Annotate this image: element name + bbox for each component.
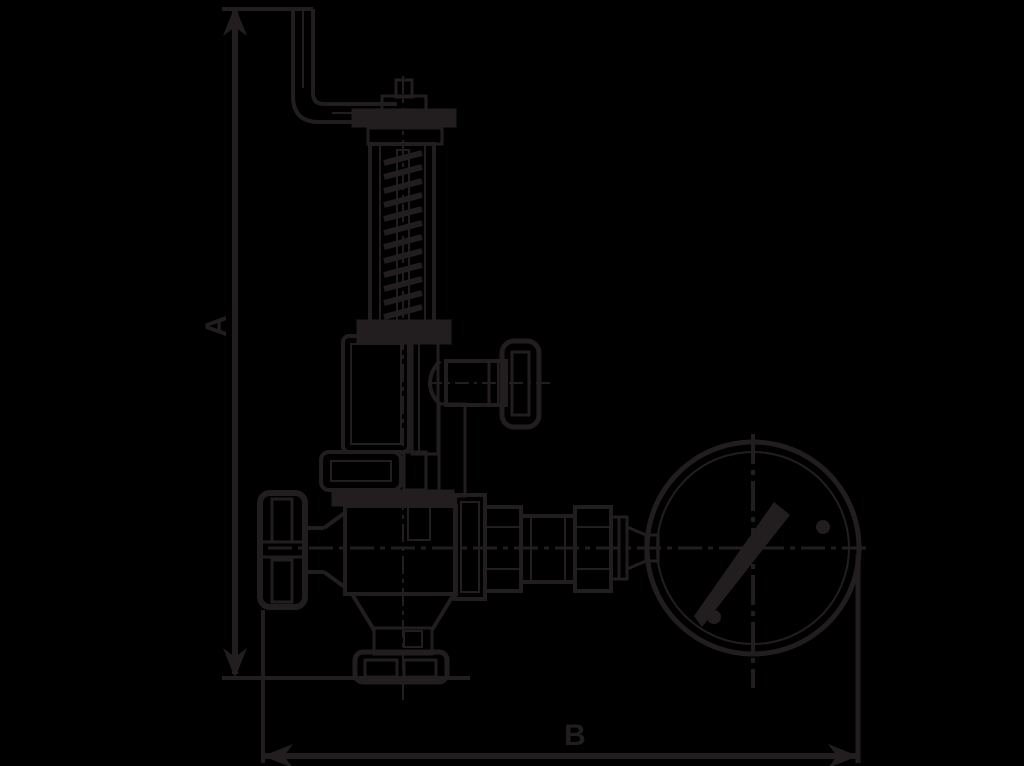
drawing-canvas: A B [0, 0, 1024, 766]
upper-valve-body [321, 336, 438, 490]
gauge-screw-right [816, 520, 830, 534]
stem-cone-top [324, 512, 346, 528]
left-wheel-slot-top [272, 499, 292, 542]
down-pipe [439, 404, 465, 496]
valve-technical-drawing: A B [0, 0, 1024, 766]
stem-cone-bottom [324, 572, 346, 588]
lever-inner-edge [313, 9, 397, 104]
upper-collar [368, 128, 442, 144]
left-handwheel [260, 493, 346, 607]
dimension-b: B [263, 554, 858, 766]
jam-nut-band [352, 109, 456, 127]
upper-body-outline [343, 336, 409, 452]
coil [384, 223, 422, 233]
stem-guide [404, 452, 426, 490]
taper-right [432, 594, 454, 630]
lower-valve-body [332, 490, 456, 682]
dimension-a-label: A [200, 315, 233, 337]
gland-nut-slot [331, 461, 391, 481]
dimension-b-label: B [564, 719, 586, 752]
flange-slot-left [365, 660, 397, 677]
body-top-band [332, 490, 454, 506]
gland-nut [321, 452, 401, 490]
left-wheel-outline [260, 493, 305, 607]
gauge-needle [694, 502, 790, 627]
lower-body-outline [345, 506, 456, 594]
flange-slot-right [404, 660, 436, 677]
lower-stem-guide [408, 506, 430, 540]
left-wheel-slot-bottom [272, 560, 292, 602]
gauge-screw-bottom [707, 610, 721, 624]
side-handwheel-assembly [430, 341, 539, 496]
upper-body-bore [351, 344, 401, 444]
taper-left [352, 594, 374, 630]
neck-bore [404, 631, 422, 647]
